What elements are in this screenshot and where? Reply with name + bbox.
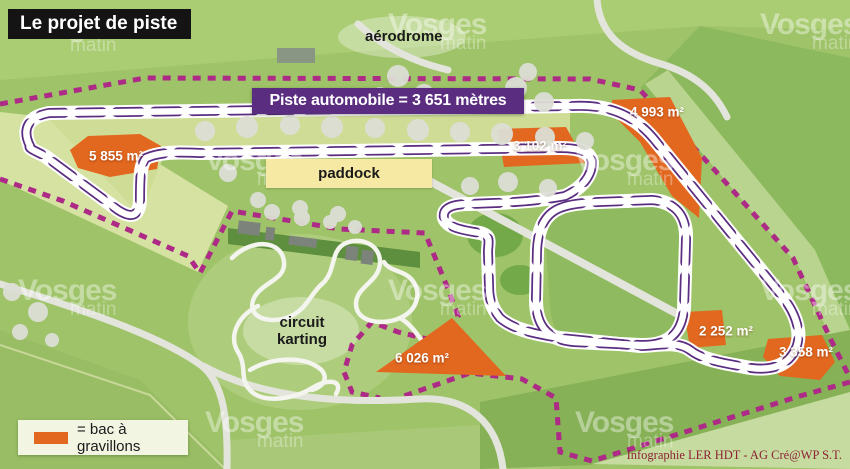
gravel-area-label-4993: 4 993 m² xyxy=(630,105,684,120)
track-length-banner: Piste automobile = 3 651 mètres xyxy=(252,88,524,114)
credit-line: Infographie LER HDT - AG Cré@WP S.T. xyxy=(627,448,842,463)
gravel-area-label-2252: 2 252 m² xyxy=(699,324,753,339)
gravel-area-label-5855: 5 855 m² xyxy=(89,149,143,164)
page-title: Le projet de piste xyxy=(8,9,191,39)
infographic-canvas: Vosgesmatin Vosgesmatin Vosgesmatin Vosg… xyxy=(0,0,850,469)
karting-label: circuit karting xyxy=(277,315,327,349)
aerodrome-label: aérodrome xyxy=(365,28,443,45)
paddock-label: paddock xyxy=(266,159,432,188)
gravel-area-label-3358: 3 358 m² xyxy=(779,345,833,360)
legend-label: = bac à gravillons xyxy=(77,421,188,455)
gravel-swatch xyxy=(34,432,68,444)
gravel-area-label-6026: 6 026 m² xyxy=(395,351,449,366)
legend: = bac à gravillons xyxy=(18,420,188,455)
circuit-map-svg xyxy=(0,0,850,469)
gravel-area-label-3102: 3 102 m² xyxy=(513,139,567,154)
aerodrome-hangar xyxy=(277,48,315,63)
